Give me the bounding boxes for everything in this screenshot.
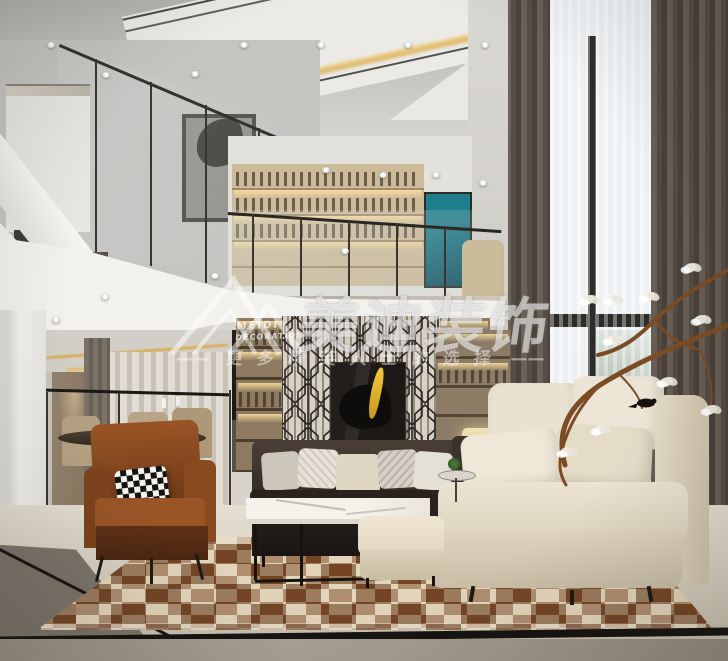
- shelf-light: [238, 352, 282, 361]
- sofa-pillow: [336, 454, 380, 494]
- railing-post: [300, 217, 302, 301]
- side-table-stem: [455, 478, 457, 502]
- marble-vein: [346, 507, 406, 515]
- books-row: [236, 172, 420, 186]
- sofa-pillow: [297, 448, 339, 489]
- ottoman-leg: [366, 578, 369, 588]
- downlight: [341, 248, 349, 254]
- shelf-light: [238, 383, 282, 392]
- shelf-light: [234, 190, 422, 198]
- downlight: [47, 42, 55, 48]
- downlight: [322, 167, 330, 173]
- railing-post: [252, 214, 254, 300]
- downlight: [432, 172, 440, 178]
- bird-silhouette: [628, 399, 657, 409]
- books-row: [239, 330, 281, 345]
- wine-glass: [176, 396, 180, 406]
- shelf-light: [238, 414, 282, 423]
- downlight: [211, 273, 219, 279]
- mirror-art-panel: [330, 362, 406, 450]
- railing-post: [396, 223, 398, 301]
- magnolia-branches: [470, 250, 728, 490]
- marble-vein: [276, 499, 346, 511]
- downlight: [101, 294, 109, 300]
- downlight: [481, 42, 489, 48]
- railing-post: [95, 59, 97, 253]
- downlight: [240, 42, 248, 48]
- sofa-pillow: [261, 451, 302, 492]
- downlight: [191, 71, 199, 77]
- sofa-leg: [570, 590, 574, 605]
- downlight: [404, 42, 412, 48]
- downlight: [479, 180, 487, 186]
- downlight: [52, 317, 60, 323]
- railing-post: [150, 82, 152, 266]
- wine-glass: [162, 398, 166, 408]
- living-room-photo: MEIDI DECORATION 美迪装饰 —— 更多精英人士的选择 ——: [0, 0, 728, 661]
- table-leg: [254, 524, 257, 580]
- railing-post: [348, 220, 350, 301]
- dark-sculpture-art: [337, 382, 393, 431]
- ottoman-leg: [432, 576, 435, 586]
- railing-post: [444, 226, 446, 301]
- cream-sofa-skirt: [430, 532, 682, 588]
- downlight: [102, 72, 110, 78]
- potted-plant: [448, 458, 460, 470]
- shelf-light: [238, 321, 282, 330]
- downlight: [379, 172, 387, 178]
- books-row: [239, 392, 281, 407]
- ottoman-front: [360, 550, 442, 580]
- sofa-leg: [262, 554, 265, 567]
- armchair-front: [96, 526, 208, 560]
- armchair-leg: [150, 558, 153, 584]
- railing-post: [205, 105, 207, 283]
- foreground-gray-marble: [0, 639, 728, 661]
- table-leg: [300, 524, 303, 586]
- glass-railing-study: [228, 210, 502, 302]
- downlight: [317, 42, 325, 48]
